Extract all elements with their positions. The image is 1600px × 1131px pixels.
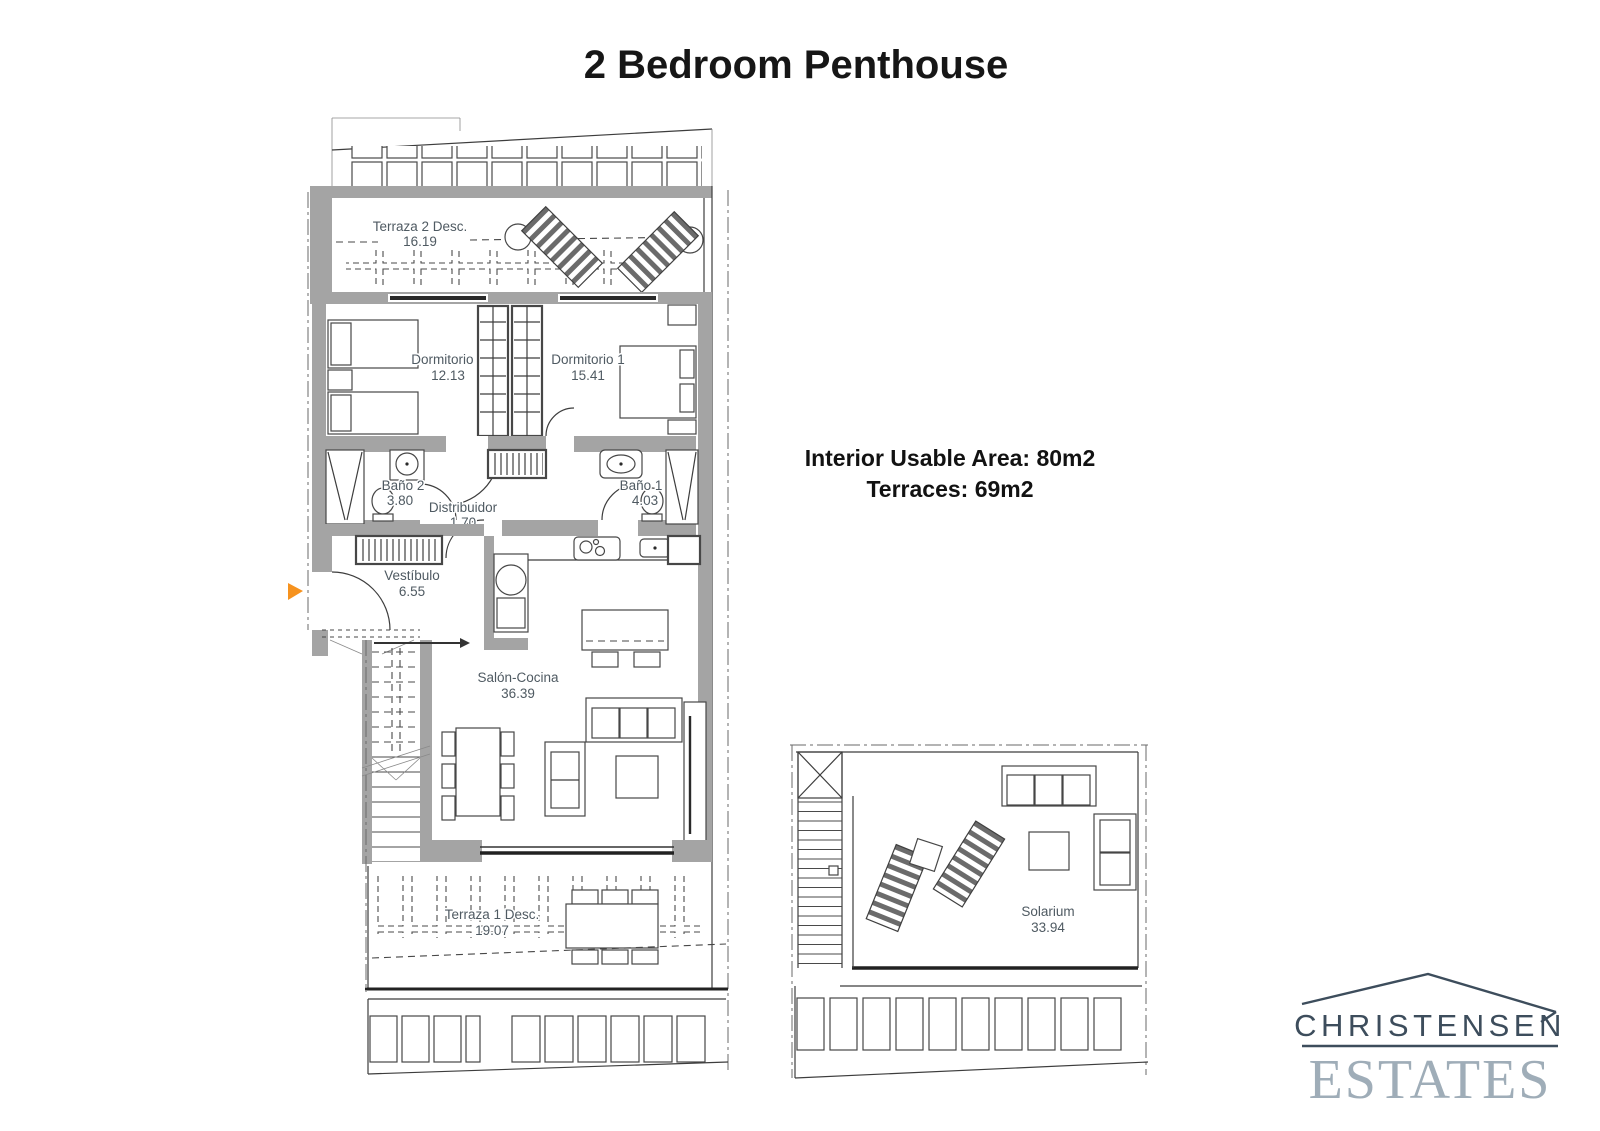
solarium-label: Solarium: [1021, 904, 1074, 919]
vestibulo-area: 6.55: [399, 584, 425, 599]
solarium-table: [1029, 832, 1069, 870]
summary-terraces-area: Terraces: 69m2: [866, 476, 1033, 502]
bano1-label: Baño 1: [620, 478, 663, 493]
dormitorio2-area: 12.13: [431, 368, 465, 383]
terraza1-label: Terraza 1 Desc.: [445, 907, 540, 922]
terraza1-area: 19.07: [475, 923, 509, 938]
page-title: 2 Bedroom Penthouse: [584, 43, 1009, 87]
dormitorio1-area: 15.41: [571, 368, 605, 383]
vestibulo-label: Vestíbulo: [384, 568, 440, 583]
solarium-area: 33.94: [1031, 920, 1065, 935]
floorplan-page: 2 Bedroom Penthouse Interior Usable Area…: [0, 0, 1600, 1131]
floorplan-canvas: 2 Bedroom Penthouse Interior Usable Area…: [0, 0, 1600, 1131]
coffee-table: [616, 756, 658, 798]
salon-label: Salón-Cocina: [477, 670, 559, 685]
dining-table: [456, 728, 500, 816]
dormitorio1-label: Dormitorio 1: [551, 352, 625, 367]
logo-type: ESTATES: [1309, 1049, 1552, 1111]
terraza2-label: Terraza 2 Desc.: [373, 219, 468, 234]
dormitorio2-label: Dormitorio 2: [411, 352, 485, 367]
terraza2-area: 16.19: [403, 234, 437, 249]
distribuidor-label: Distribuidor: [429, 500, 498, 515]
bano2-area: 3.80: [387, 493, 413, 508]
logo-name: CHRISTENSEN: [1294, 1008, 1566, 1043]
bano2-label: Baño 2: [382, 478, 425, 493]
summary-interior-area: Interior Usable Area: 80m2: [805, 445, 1096, 471]
salon-area: 36.39: [501, 686, 535, 701]
outdoor-table: [566, 904, 658, 948]
tv-unit: [684, 702, 706, 846]
bano1-area: 4.03: [632, 493, 658, 508]
